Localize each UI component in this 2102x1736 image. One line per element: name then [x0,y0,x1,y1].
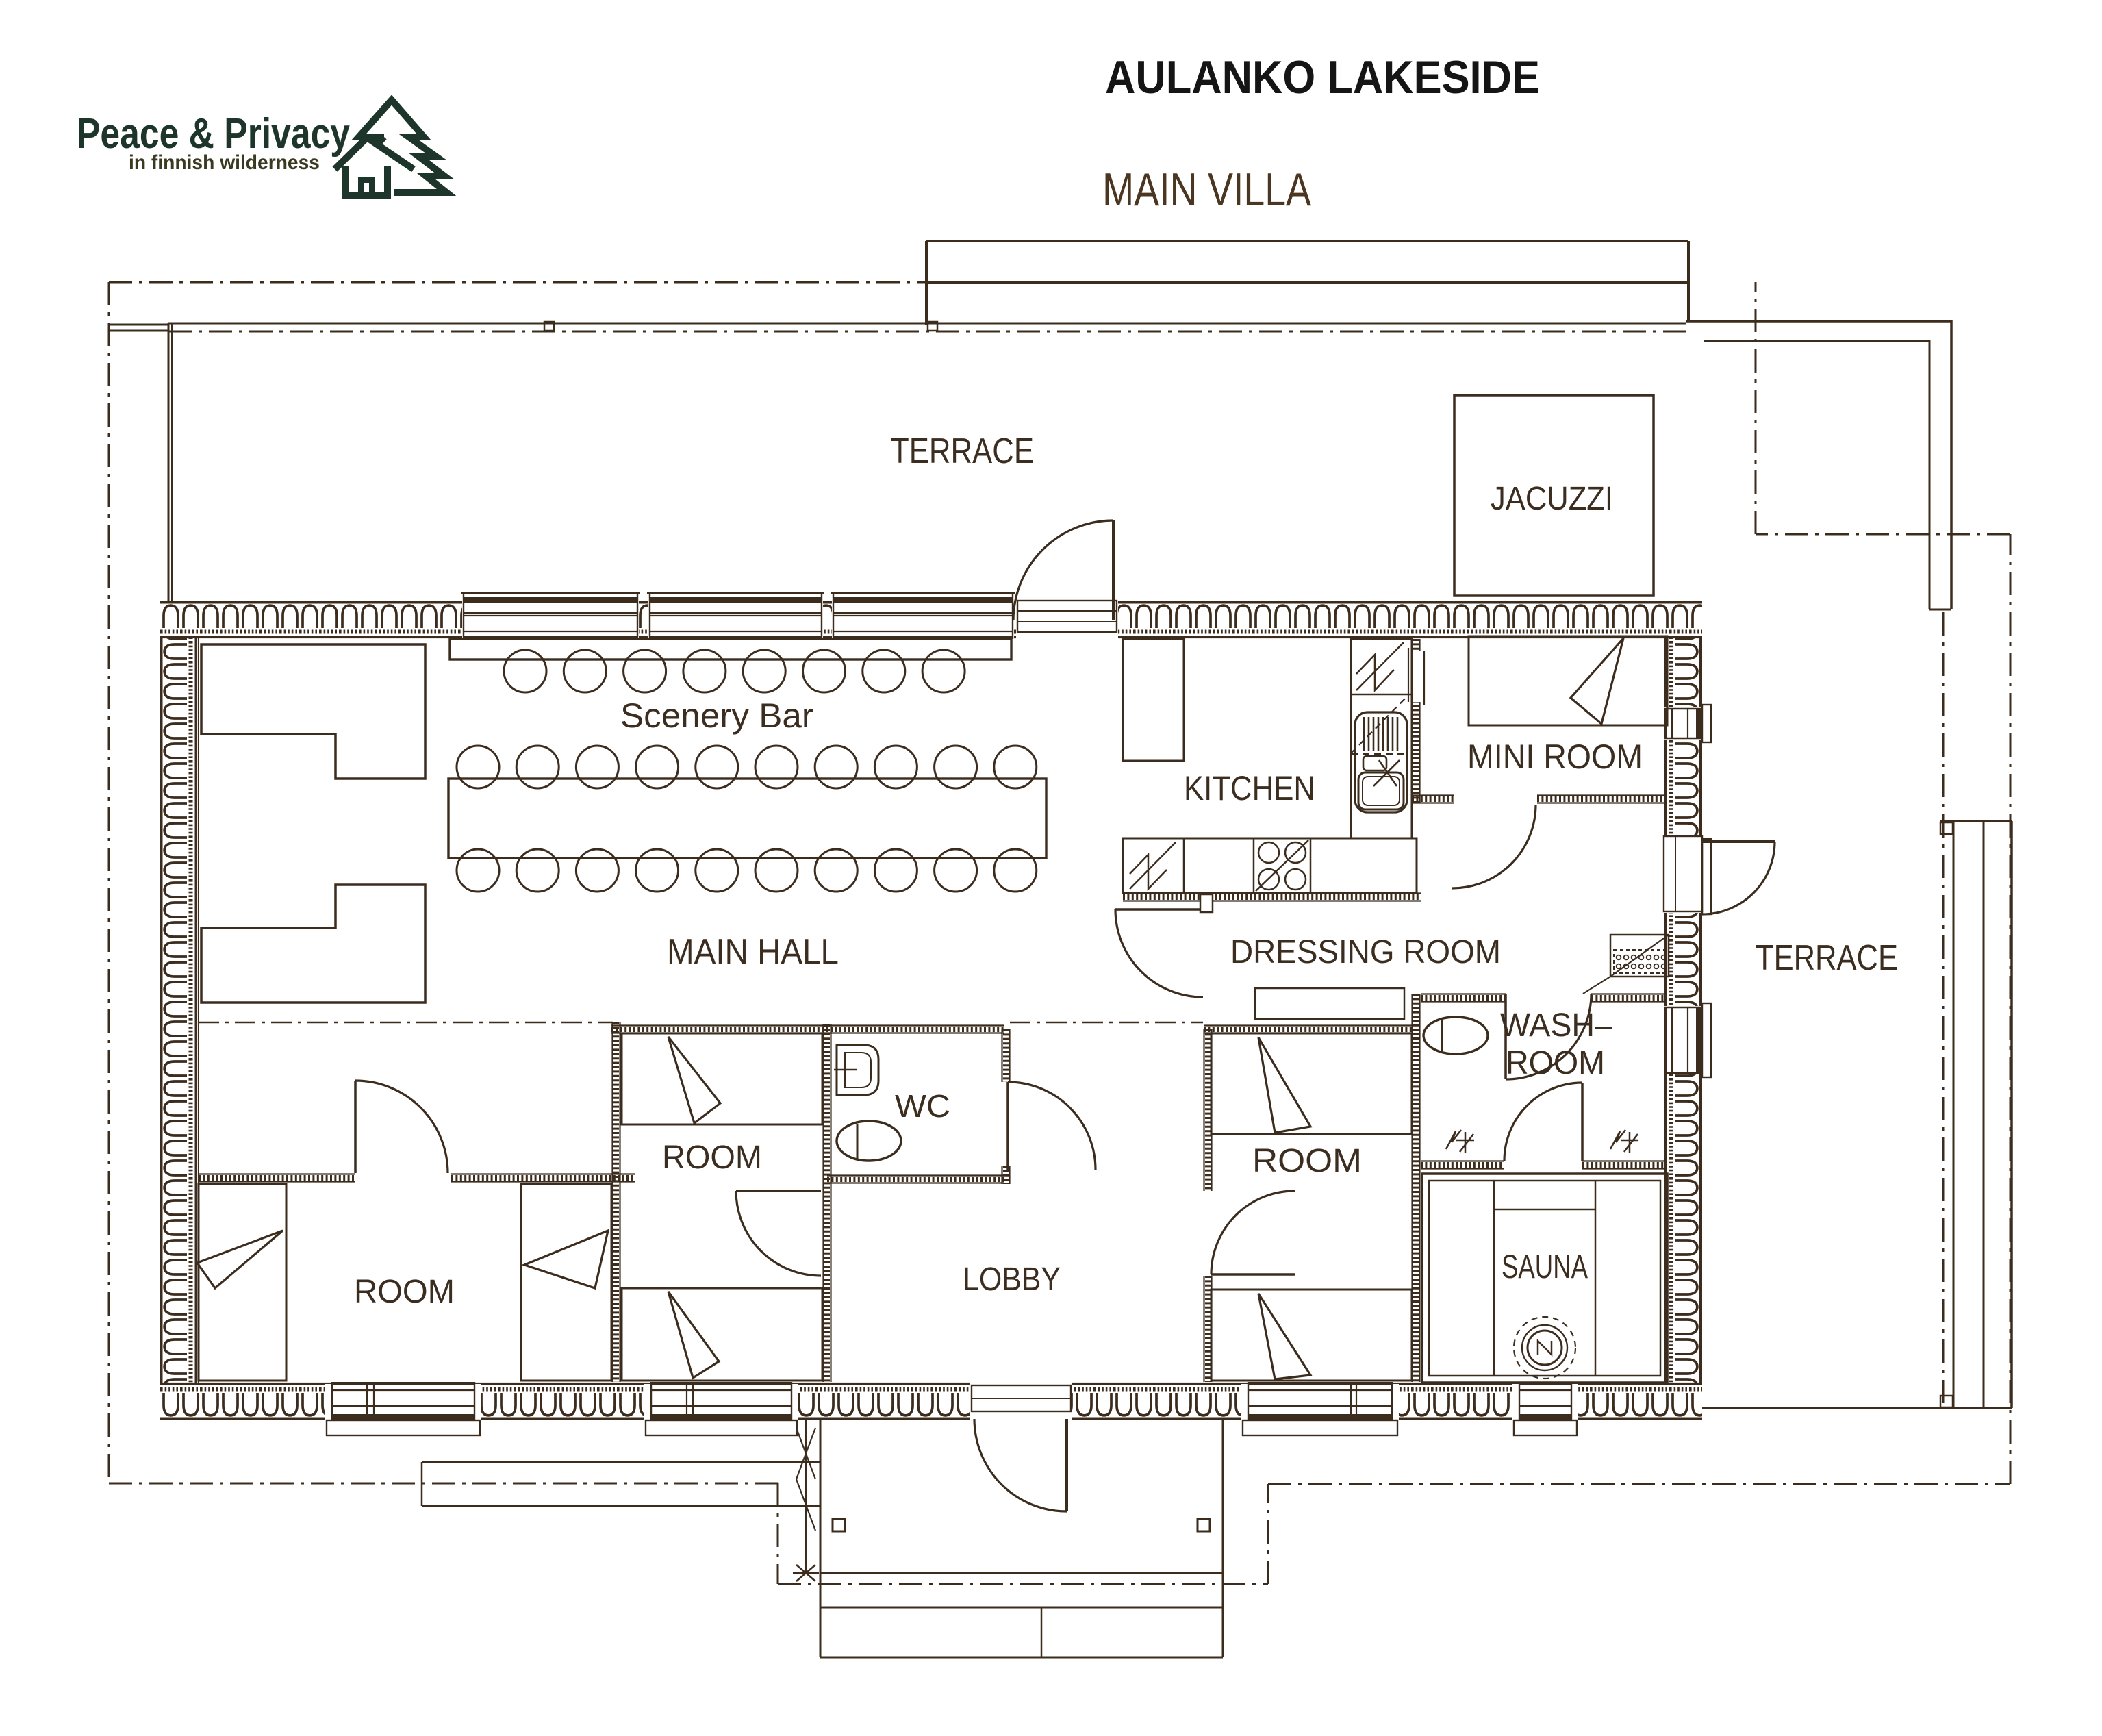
svg-text:ROOM: ROOM [662,1140,762,1176]
svg-text:TERRACE: TERRACE [891,431,1034,471]
svg-text:WC: WC [895,1088,950,1124]
svg-text:WASH–: WASH– [1500,1007,1612,1044]
svg-text:Scenery Bar: Scenery Bar [620,696,813,735]
svg-text:MAIN VILLA: MAIN VILLA [1102,164,1312,216]
svg-text:MAIN HALL: MAIN HALL [667,932,839,972]
svg-text:LOBBY: LOBBY [963,1261,1061,1298]
svg-text:SAUNA: SAUNA [1502,1249,1588,1285]
svg-text:Peace & Privacy: Peace & Privacy [77,110,350,158]
svg-text:AULANKO LAKESIDE: AULANKO LAKESIDE [1105,51,1540,103]
svg-text:TERRACE: TERRACE [1756,938,1898,978]
svg-text:DRESSING ROOM: DRESSING ROOM [1230,934,1501,970]
svg-text:ROOM: ROOM [1506,1045,1605,1081]
svg-text:ROOM: ROOM [1252,1143,1362,1179]
svg-text:in finnish wilderness: in finnish wilderness [129,151,320,174]
svg-text:KITCHEN: KITCHEN [1184,769,1315,807]
svg-text:JACUZZI: JACUZZI [1491,481,1613,517]
svg-text:ROOM: ROOM [354,1274,455,1310]
svg-text:MINI ROOM: MINI ROOM [1467,738,1643,776]
